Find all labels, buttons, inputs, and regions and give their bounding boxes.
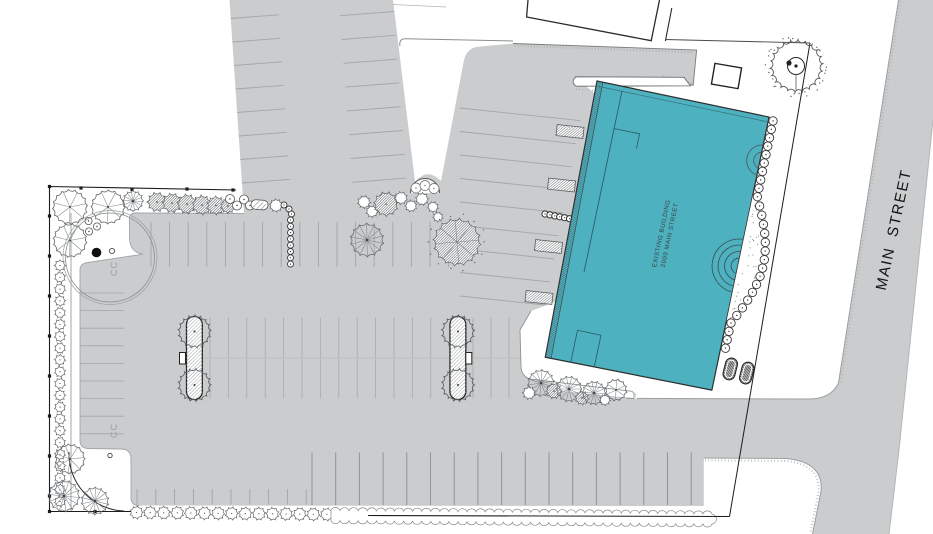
- svg-text:CC: CC: [109, 423, 119, 438]
- svg-text:CC: CC: [109, 261, 119, 276]
